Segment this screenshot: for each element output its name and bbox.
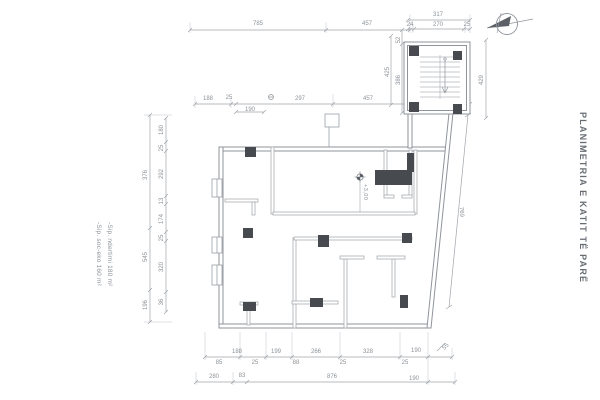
north-arrow-icon bbox=[487, 13, 533, 35]
dim-label: 24 bbox=[407, 22, 414, 28]
dim-label: 190 bbox=[411, 348, 421, 354]
dim-label: 25 bbox=[464, 22, 471, 28]
dim-label: 876 bbox=[327, 374, 337, 380]
dim-label: 36 bbox=[159, 299, 165, 306]
dim-label: 25 bbox=[402, 360, 409, 366]
dim-label: 457 bbox=[362, 21, 372, 27]
dim-label: 85 bbox=[216, 360, 223, 366]
dim-label: 13 bbox=[159, 198, 165, 205]
dim-label: 376 bbox=[143, 170, 149, 180]
dim-label: 25 bbox=[252, 360, 259, 366]
dim-label: 83 bbox=[239, 373, 246, 379]
area-note-built: -Sip. ndertimi 180 m² bbox=[104, 198, 115, 310]
dim-label: 320 bbox=[159, 262, 165, 272]
dim-label: 196 bbox=[143, 300, 149, 310]
dim-label: 88 bbox=[293, 360, 300, 366]
dim-label: 25 bbox=[159, 145, 165, 152]
dim-label: 188 bbox=[232, 349, 242, 355]
dim-label: 785 bbox=[253, 21, 263, 27]
dim-label: 425 bbox=[385, 67, 391, 77]
dim-label: 180 bbox=[159, 125, 165, 135]
area-notes: -Sip. ndertimi 180 m² -Sip. soc-eko 160 … bbox=[93, 198, 115, 310]
dim-label: 199 bbox=[271, 349, 281, 355]
level-label: +3,00 bbox=[362, 184, 368, 200]
dim-label: 25 bbox=[159, 235, 165, 242]
dim-label: 174 bbox=[159, 214, 165, 224]
dim-label: 190 bbox=[409, 376, 419, 382]
dim-label: 545 bbox=[143, 252, 149, 262]
dim-label: 292 bbox=[159, 169, 165, 179]
dim-label: 297 bbox=[295, 96, 305, 102]
dim-label: 270 bbox=[433, 22, 443, 28]
area-note-soc-eko: -Sip. soc-eko 160 m² bbox=[93, 198, 104, 310]
circle-symbol bbox=[269, 95, 274, 100]
dim-label: 190 bbox=[245, 107, 255, 113]
dim-label: 386 bbox=[396, 75, 402, 85]
dim-label: 52 bbox=[396, 37, 402, 44]
floor-plan-drawing bbox=[0, 0, 600, 400]
dim-label: 457 bbox=[363, 96, 373, 102]
page-title: PLANIMETRIA E KATIT TË PARË bbox=[578, 112, 588, 312]
dim-label: 280 bbox=[209, 374, 219, 380]
dim-label: 429 bbox=[479, 75, 485, 85]
floor-plan-sheet: 785 457 317 24 270 25 188 25 297 457 190… bbox=[0, 0, 600, 400]
dim-label: 25 bbox=[340, 360, 347, 366]
dim-label: 317 bbox=[433, 12, 443, 18]
shaft-box bbox=[325, 114, 339, 147]
dim-label: 769 bbox=[458, 207, 465, 217]
dim-label: 25 bbox=[226, 95, 233, 101]
dim-label: 188 bbox=[203, 96, 213, 102]
dim-label: 266 bbox=[311, 349, 321, 355]
dim-label: 328 bbox=[363, 349, 373, 355]
